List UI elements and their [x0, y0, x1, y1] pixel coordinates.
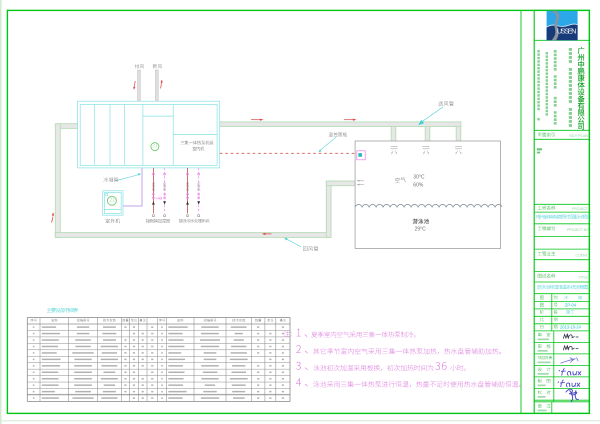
svg-text:29°C: 29°C	[415, 227, 427, 233]
svg-text:30°C: 30°C	[413, 174, 425, 180]
svg-text:USSEN: USSEN	[557, 26, 577, 35]
svg-text:ZP-04: ZP-04	[565, 302, 577, 307]
svg-text:PROJECT NO.: PROJECT NO.	[567, 228, 590, 232]
svg-text:PROJECT: PROJECT	[572, 207, 588, 211]
svg-text:TITLE: TITLE	[579, 276, 589, 280]
svg-text:60%: 60%	[413, 183, 424, 189]
svg-text:KEY PLAN: KEY PLAN	[570, 134, 589, 138]
svg-text:CLIENT: CLIENT	[576, 254, 588, 258]
svg-text:2013-10-24: 2013-10-24	[560, 324, 582, 329]
